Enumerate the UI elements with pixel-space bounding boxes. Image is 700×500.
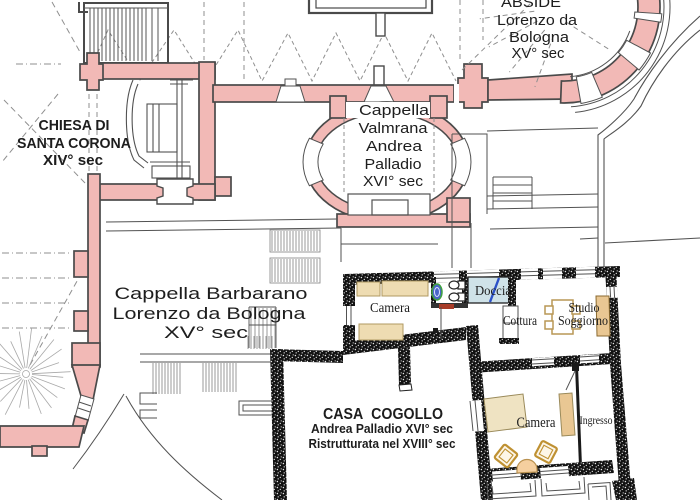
svg-text:XIV° sec: XIV° sec [43, 152, 103, 169]
svg-text:Ristrutturata nel XVIII° sec: Ristrutturata nel XVIII° sec [309, 437, 456, 451]
svg-text:XV° sec: XV° sec [512, 45, 565, 62]
svg-text:Lorenzo da: Lorenzo da [497, 12, 578, 29]
svg-text:Andrea: Andrea [366, 138, 423, 155]
svg-text:Ingresso: Ingresso [580, 415, 613, 427]
svg-text:XVI° sec: XVI° sec [363, 173, 424, 190]
svg-text:SANTA CORONA: SANTA CORONA [17, 135, 131, 152]
svg-text:Valmrana: Valmrana [359, 120, 429, 137]
svg-text:Cappella: Cappella [359, 102, 430, 119]
svg-text:Andrea Palladio XVI° sec: Andrea Palladio XVI° sec [311, 422, 453, 436]
svg-text:Cottura: Cottura [503, 314, 538, 329]
svg-text:Cappella Barbarano: Cappella Barbarano [115, 284, 308, 303]
svg-text:Camera: Camera [370, 301, 411, 316]
svg-text:Soggiorno: Soggiorno [558, 313, 608, 328]
svg-text:Bologna: Bologna [509, 29, 570, 46]
svg-text:Palladio: Palladio [365, 156, 422, 173]
svg-text:Lorenzo da Bologna: Lorenzo da Bologna [113, 304, 307, 323]
svg-text:XV° sec: XV° sec [164, 323, 249, 342]
svg-text:CASA COGOLLO: CASA COGOLLO [323, 406, 443, 423]
svg-text:ABSIDE: ABSIDE [501, 0, 561, 11]
svg-text:Camera: Camera [517, 415, 556, 431]
svg-text:Doccia: Doccia [475, 283, 511, 298]
svg-text:CHIESA DI: CHIESA DI [39, 117, 110, 134]
